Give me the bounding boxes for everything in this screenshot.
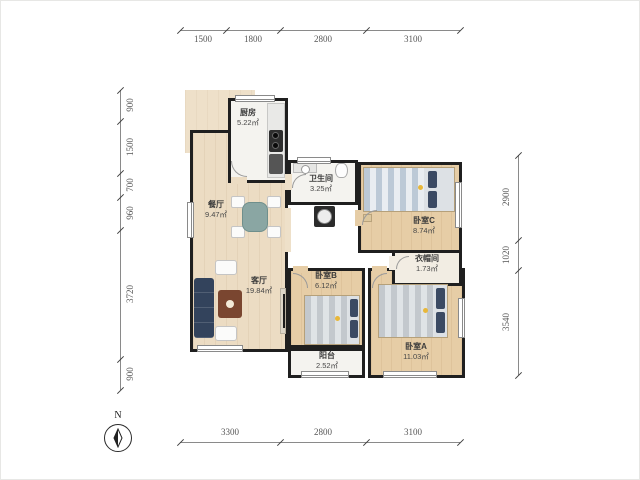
dim-left-seg-1: 900 <box>125 85 135 125</box>
dim-right-seg-1: 2900 <box>501 177 511 217</box>
bedroom-a-area: 11.03㎡ <box>385 352 447 361</box>
fridge-icon <box>269 154 283 174</box>
dim-left-seg-4: 960 <box>125 193 135 233</box>
living-label: 客厅 19.84㎡ <box>235 276 283 295</box>
dim-top-seg-2: 1800 <box>230 34 276 44</box>
dining-chair <box>267 196 281 208</box>
kitchen-name: 厨房 <box>228 108 268 118</box>
pillow <box>428 171 437 188</box>
door-opening <box>355 210 362 226</box>
blanket <box>305 296 348 344</box>
window <box>458 298 465 338</box>
dimension-line-left <box>120 90 121 390</box>
bathroom-vanity <box>293 163 317 173</box>
door-opening <box>389 256 396 270</box>
dining-name: 餐厅 <box>193 200 239 210</box>
dim-left-seg-6: 900 <box>125 354 135 394</box>
bed-decor-dot <box>423 308 428 313</box>
bedroom-c-name: 卧室C <box>393 216 455 226</box>
bathroom-area: 3.25㎡ <box>291 184 351 193</box>
bedroom-c-label: 卧室C 8.74㎡ <box>393 216 455 235</box>
kitchen-label: 厨房 5.22㎡ <box>228 108 268 127</box>
bathroom-label: 卫生间 3.25㎡ <box>291 174 351 193</box>
dim-tick <box>457 439 464 446</box>
window <box>197 345 243 352</box>
closet-label: 衣帽间 1.73㎡ <box>397 254 457 273</box>
door-opening <box>372 266 387 273</box>
sofa <box>194 278 214 338</box>
window <box>383 371 437 378</box>
compass: N <box>100 410 136 470</box>
pillow <box>436 288 445 309</box>
bedroom-b-label: 卧室B 6.12㎡ <box>297 271 355 290</box>
bedroom-b-area: 6.12㎡ <box>297 281 355 290</box>
pillow <box>436 312 445 333</box>
dining-area: 9.47㎡ <box>193 210 239 219</box>
dim-bottom-seg-2: 2800 <box>300 427 346 437</box>
dim-bottom-seg-1: 3300 <box>207 427 253 437</box>
dining-table <box>242 202 268 232</box>
dim-tick <box>117 387 124 394</box>
compass-icon <box>104 424 132 452</box>
dim-top-seg-3: 2800 <box>300 34 346 44</box>
balcony-area: 2.52㎡ <box>297 361 357 370</box>
pillow <box>350 299 358 317</box>
bed-decor-dot <box>418 185 423 190</box>
living-area: 19.84㎡ <box>235 286 283 295</box>
bathroom-name: 卫生间 <box>291 174 351 184</box>
burner-icon <box>273 143 278 148</box>
bedroom-b-name: 卧室B <box>297 271 355 281</box>
living-name: 客厅 <box>235 276 283 286</box>
compass-needle-icon <box>108 428 128 448</box>
opening-dining-hallway <box>285 208 291 252</box>
dim-left-seg-2: 1500 <box>125 127 135 167</box>
dim-top-seg-1: 1500 <box>180 34 226 44</box>
dim-bottom-seg-3: 3100 <box>390 427 436 437</box>
floor-plan-canvas: { "compass": { "label": "N" }, "dims": {… <box>0 0 640 480</box>
bedroom-a-label: 卧室A 11.03㎡ <box>385 342 447 361</box>
armchair <box>215 260 237 275</box>
window <box>455 182 462 228</box>
washing-machine-icon <box>314 206 335 227</box>
dim-right-seg-3: 3540 <box>501 302 511 342</box>
closet-name: 衣帽间 <box>397 254 457 264</box>
dim-left-seg-5: 3720 <box>125 274 135 314</box>
table-decor <box>226 300 234 308</box>
dim-tick <box>457 27 464 34</box>
dim-tick <box>515 372 522 379</box>
bedroom-a-name: 卧室A <box>385 342 447 352</box>
balcony-label: 阳台 2.52㎡ <box>297 351 357 370</box>
dimension-line-bottom <box>180 442 460 443</box>
balcony-name: 阳台 <box>297 351 357 361</box>
pillow <box>350 320 358 338</box>
window <box>235 95 275 102</box>
dining-chair <box>267 226 281 238</box>
bedroom-c-area: 8.74㎡ <box>393 226 455 235</box>
door-opening <box>231 177 247 184</box>
closet-area: 1.73㎡ <box>397 264 457 273</box>
dim-top-seg-4: 3100 <box>390 34 436 44</box>
sink-icon <box>301 165 310 174</box>
dim-right-seg-2: 1020 <box>501 235 511 275</box>
dining-label: 餐厅 9.47㎡ <box>193 200 239 219</box>
armchair <box>215 326 237 341</box>
kitchen-area: 5.22㎡ <box>228 118 268 127</box>
blanket <box>364 168 424 211</box>
dimension-line-right <box>518 155 519 375</box>
pillow <box>428 191 437 208</box>
floor-plan: 厨房 5.22㎡ 卫生间 3.25㎡ 餐厅 9.47㎡ 客厅 19.84㎡ 卧室… <box>185 90 465 395</box>
dimension-line-top <box>180 30 460 31</box>
compass-north-label: N <box>100 410 136 421</box>
window <box>297 157 331 164</box>
bed-decor-dot <box>335 316 340 321</box>
tv-icon <box>283 294 285 328</box>
washer-drum-icon <box>317 209 332 224</box>
stove-icon <box>269 130 283 152</box>
burner-icon <box>273 133 278 138</box>
window <box>301 371 349 378</box>
